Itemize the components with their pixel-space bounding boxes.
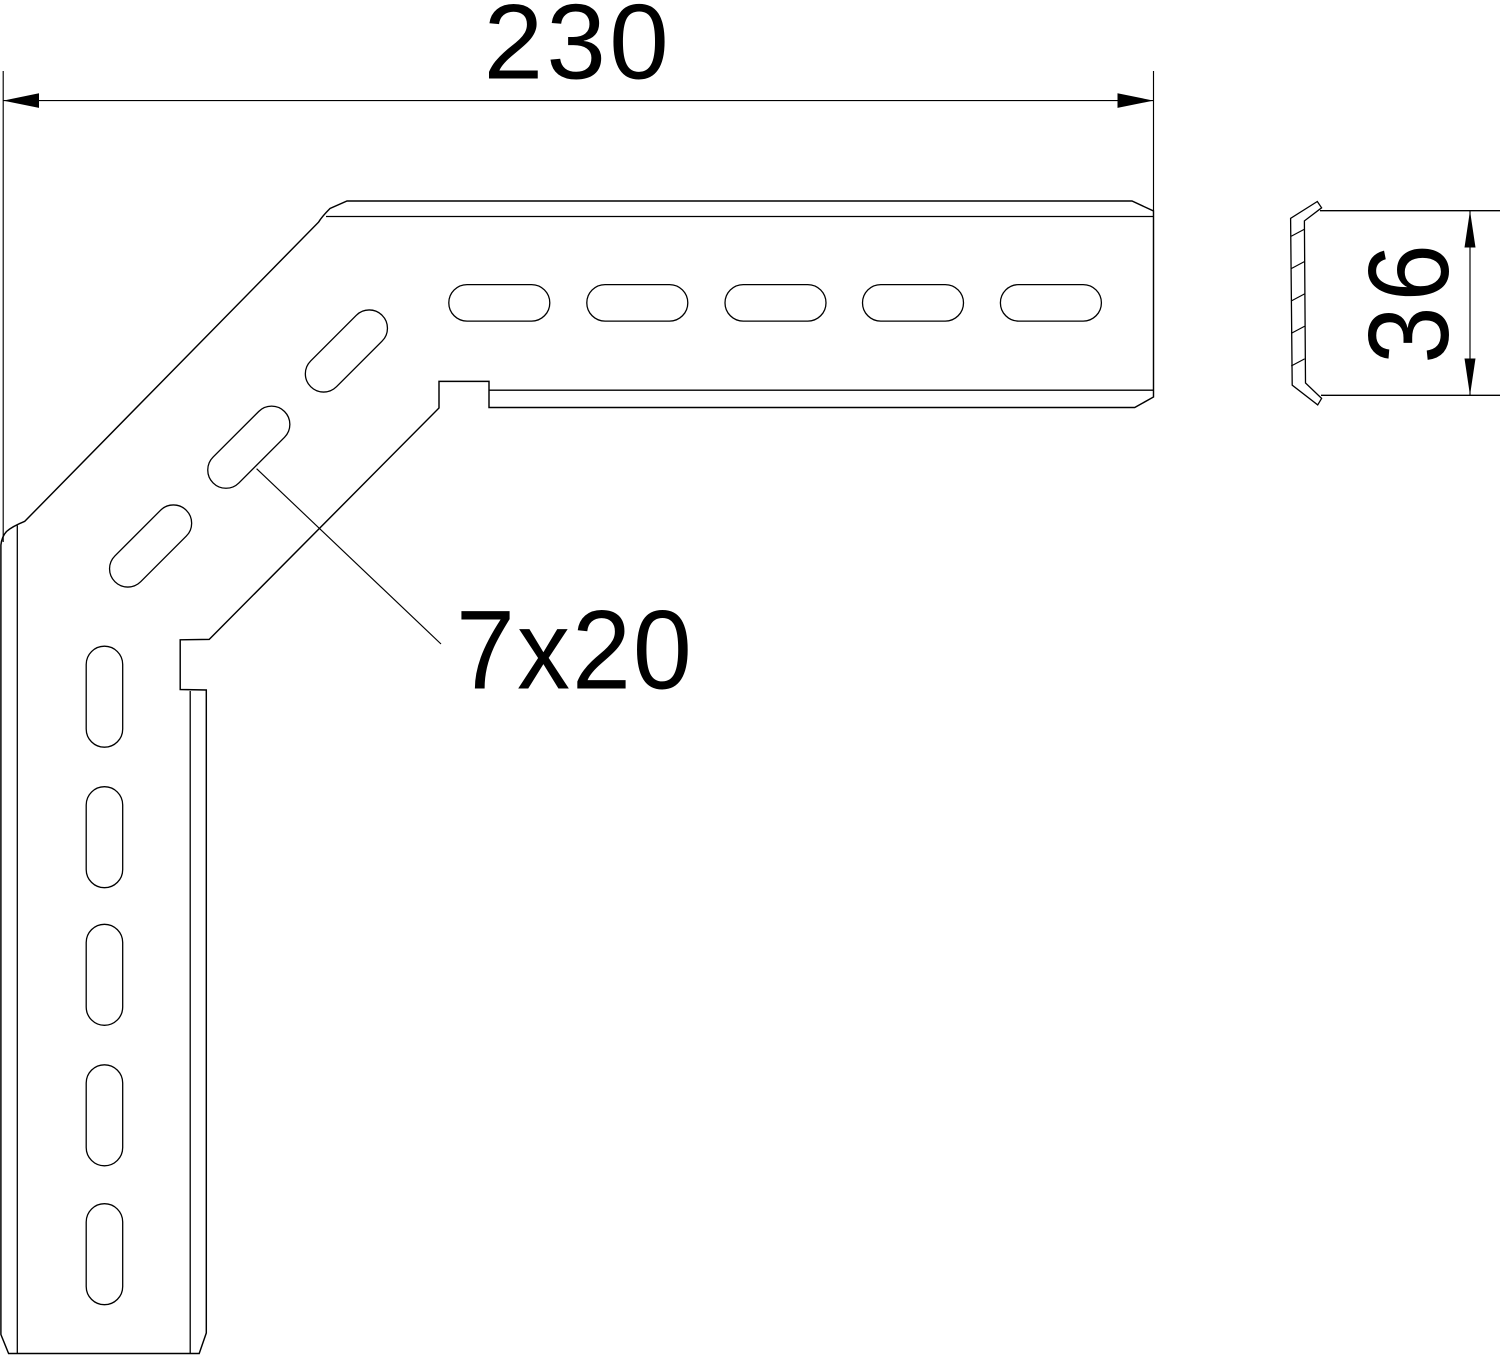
svg-text:7x20: 7x20	[456, 588, 694, 713]
svg-text:36: 36	[1346, 239, 1473, 364]
svg-text:230: 230	[484, 0, 672, 102]
